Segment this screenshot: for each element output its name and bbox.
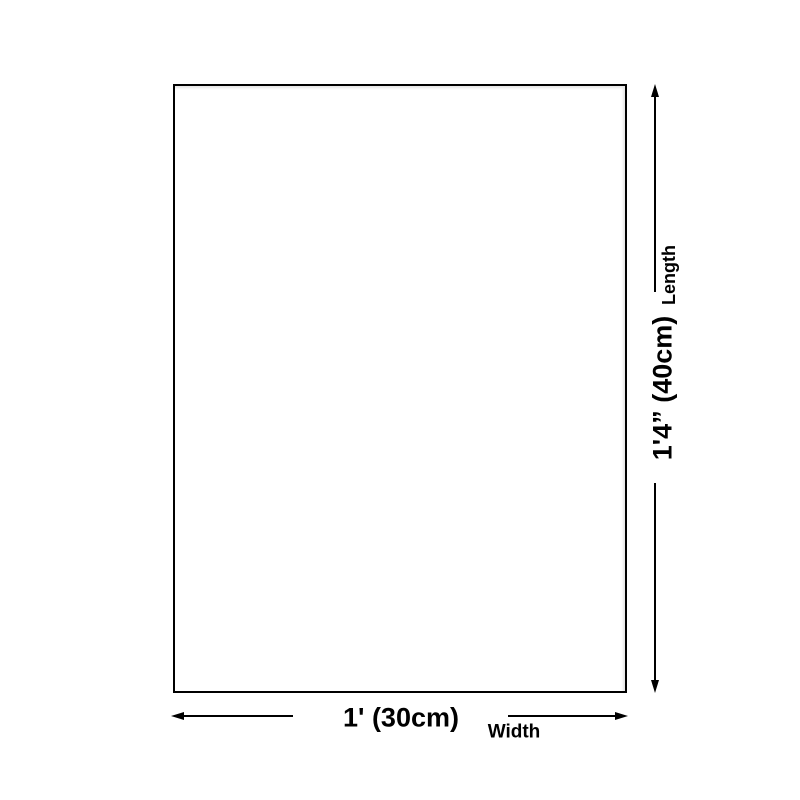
width-value-label: 1' (30cm) [343, 705, 459, 732]
length-arrow-line-bottom [654, 483, 657, 681]
product-outline [173, 84, 627, 693]
width-axis-label: Width [488, 723, 541, 742]
arrowhead-right-icon [615, 712, 628, 720]
length-arrow-line-top [654, 96, 657, 292]
dimension-diagram: 1'4” (40cm) Length 1' (30cm) Width [0, 0, 800, 800]
length-value-label: 1'4” (40cm) [650, 316, 677, 461]
length-axis-label: Length [660, 245, 678, 305]
width-arrow-line-right [508, 715, 616, 718]
arrowhead-down-icon [651, 680, 659, 693]
width-arrow-line-left [183, 715, 293, 718]
